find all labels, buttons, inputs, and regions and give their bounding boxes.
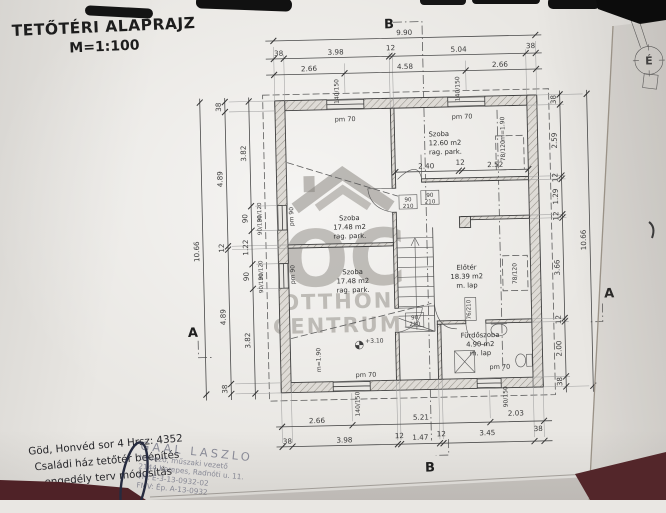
binding-dash-4	[472, 0, 540, 4]
signature-pen-loop	[116, 440, 153, 500]
binding-dash-1	[85, 5, 153, 19]
binding-dash-3	[420, 0, 466, 5]
table-corner-left	[0, 480, 146, 500]
paper-bottom-shade	[150, 477, 588, 500]
binding-corner-wedge	[596, 0, 666, 24]
photo-decorations	[0, 0, 666, 500]
binding-dash-5	[548, 0, 600, 9]
binding-dash-2	[196, 0, 292, 12]
photographed-drawing-sheet: OC OTTHON CENTRUM	[0, 0, 666, 500]
